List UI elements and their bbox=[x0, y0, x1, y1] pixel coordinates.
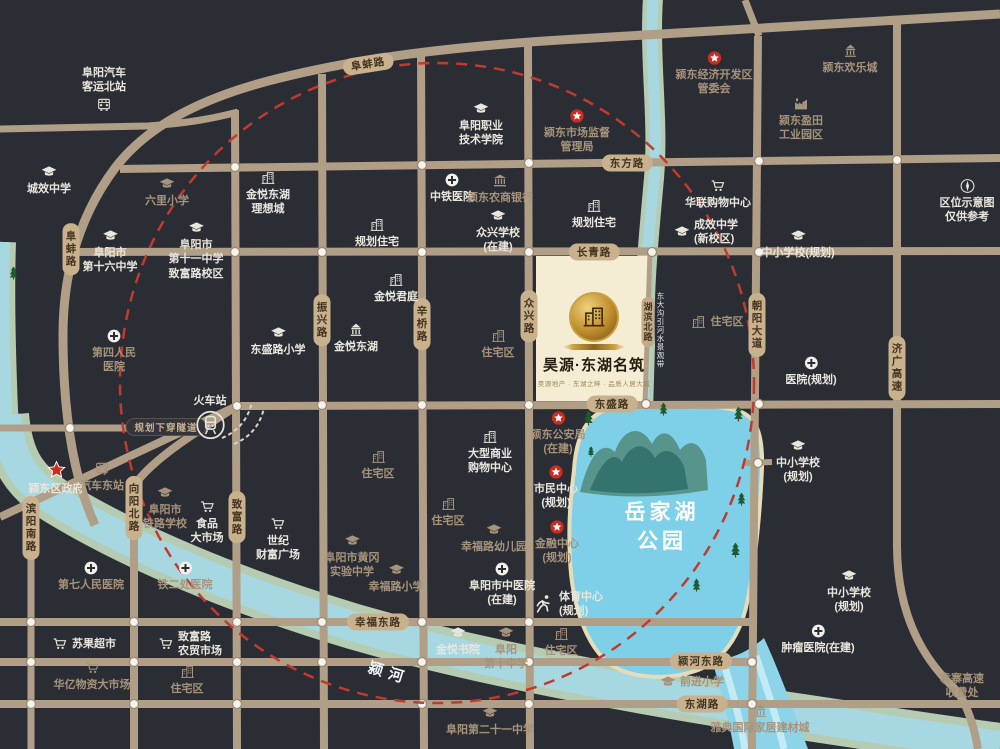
no7-people-hospital: 第七人民医院 bbox=[58, 560, 124, 592]
no4-people-hospital-label: 第四人民医院 bbox=[92, 346, 136, 375]
jinyue-donghu: 金悦东湖 bbox=[334, 322, 378, 354]
shopping-cart-icon bbox=[199, 499, 215, 515]
graduation-cap-icon bbox=[841, 568, 857, 584]
xingfulu-primary-school: 幸福路小学 bbox=[369, 562, 424, 594]
tower-icon bbox=[581, 304, 607, 330]
hualian-shopping-center: 华联购物中心 bbox=[685, 178, 751, 210]
school-planned-east: 中小学校(规划) bbox=[776, 438, 820, 485]
building-icon bbox=[482, 429, 498, 445]
road-label-xingfu-east: 幸福东路 bbox=[347, 614, 409, 631]
finance-center-label: 金融中心(规划) bbox=[535, 537, 579, 566]
building-icon bbox=[388, 272, 404, 288]
zhongxing-school: 众兴学校(在建) bbox=[476, 208, 520, 255]
food-market: 食品大市场 bbox=[191, 499, 224, 546]
graduation-cap-icon bbox=[450, 625, 466, 641]
graduation-cap-icon bbox=[674, 224, 690, 240]
road-label-jiguang-expressway: 济广高速 bbox=[889, 336, 906, 400]
yingdong-district-government-label: 颍东区政府 bbox=[29, 482, 84, 496]
residential-east-label: 住宅区 bbox=[711, 315, 744, 329]
fuyang-no11-middle-school-label: 阜阳市第十一中学致富路校区 bbox=[169, 238, 224, 281]
yingtian-industrial-park-label: 颍东盈田工业园区 bbox=[779, 114, 823, 143]
factory-icon bbox=[793, 96, 809, 112]
residential-center-label: 住宅区 bbox=[432, 514, 465, 528]
hospital-cross-icon bbox=[494, 561, 510, 577]
xingfulu-kindergarten-label: 幸福路幼儿园 bbox=[461, 540, 527, 554]
residential-mid-label: 住宅区 bbox=[482, 346, 515, 360]
graduation-cap-icon bbox=[388, 562, 404, 578]
railway-school-label: 阜阳市铁路学校 bbox=[143, 503, 187, 532]
train-station: 火车站 bbox=[194, 394, 227, 440]
fuyang-vocational-college-label: 阜阳职业技术学院 bbox=[459, 119, 503, 148]
xingfulu-primary-school-label: 幸福路小学 bbox=[369, 580, 424, 594]
jinyue-donghu-label: 金悦东湖 bbox=[334, 340, 378, 354]
yingdong-huanlecheng-label: 颍东欢乐城 bbox=[823, 61, 878, 75]
project-medallion bbox=[569, 292, 619, 342]
residential-southwest: 住宅区 bbox=[362, 449, 395, 481]
no7-people-hospital-label: 第七人民医院 bbox=[58, 578, 124, 592]
residential-center: 住宅区 bbox=[432, 496, 465, 528]
hospital-cross-icon bbox=[177, 560, 193, 576]
road-label-zhifu: 致富路 bbox=[229, 491, 246, 543]
bus-station-east: 汽车东站 bbox=[80, 461, 124, 493]
runner-icon bbox=[533, 593, 555, 615]
graduation-cap-icon bbox=[159, 176, 175, 192]
bus-station-east-label: 汽车东站 bbox=[80, 479, 124, 493]
school-planned-north: 中小学校(规划) bbox=[761, 228, 834, 260]
tieerchu-hospital: 铁二处医院 bbox=[158, 560, 213, 592]
sports-center-label: 体育中心(规划) bbox=[559, 590, 603, 619]
sports-center: 体育中心(规划) bbox=[533, 590, 603, 619]
finance-center: 金融中心(规划) bbox=[535, 519, 579, 566]
qianjin-primary-school-label: 前进小学 bbox=[680, 675, 724, 689]
bus-station-north: 阜阳汽车客运北站 bbox=[82, 66, 126, 113]
graduation-cap-icon bbox=[344, 533, 360, 549]
fuyang-no16-middle-school: 阜阳市第十六中学 bbox=[83, 228, 138, 275]
road-label-xiangyang-north: 向阳北路 bbox=[126, 476, 143, 540]
tcm-hospital-label: 阜阳市中医院(在建) bbox=[469, 579, 535, 608]
road-label-yinghe-east: 颍河东路 bbox=[670, 653, 732, 670]
building-icon bbox=[691, 314, 707, 330]
graduation-cap-icon bbox=[188, 220, 204, 236]
railway-school: 阜阳市铁路学校 bbox=[143, 485, 187, 532]
compass-icon bbox=[959, 178, 975, 194]
yinghe-river-name: 颍河 bbox=[366, 656, 412, 688]
fuyang-no16-middle-school-label: 阜阳市第十六中学 bbox=[83, 246, 138, 275]
location-map-disclaimer: 区位示意图仅供参考 bbox=[940, 178, 995, 225]
fuyang-no11-middle-school: 阜阳市第十一中学致富路校区 bbox=[169, 220, 224, 281]
yingdong-huanlecheng: 颍东欢乐城 bbox=[823, 43, 878, 75]
road-label-dongsheng: 东盛路 bbox=[587, 396, 638, 413]
civic-center: 市民中心(规划) bbox=[534, 464, 578, 511]
planned-residential-east: 规划住宅 bbox=[572, 198, 616, 230]
nongshang-bank: 颍东农商银行 bbox=[467, 173, 533, 205]
star-marker-icon bbox=[569, 108, 585, 124]
star-marker-icon bbox=[550, 410, 566, 426]
hospital-cross-icon bbox=[444, 172, 460, 188]
zhifulu-farmers-market: 致富路农贸市场 bbox=[158, 630, 222, 659]
huayi-materials-market-label: 华亿物资大市场 bbox=[54, 678, 131, 692]
road-label-zhenxing: 振兴路 bbox=[314, 294, 331, 346]
hospital-cross-icon bbox=[106, 328, 122, 344]
shopping-cart-icon bbox=[84, 660, 100, 676]
shopping-cart-icon bbox=[158, 636, 174, 652]
star-marker-icon bbox=[549, 519, 565, 535]
public-security-bureau-label: 颍东公安局(在建) bbox=[531, 428, 586, 457]
school-planned-southeast-label: 中小学校(规划) bbox=[827, 586, 871, 615]
residential-mid: 住宅区 bbox=[482, 328, 515, 360]
dongshenglu-primary-school: 东盛路小学 bbox=[251, 325, 306, 357]
planned-residential-west-label: 规划住宅 bbox=[355, 235, 399, 249]
jinyue-academy: 金悦书院 bbox=[436, 625, 480, 657]
economic-development-zone: 颍东经济开发区管委会 bbox=[676, 50, 753, 97]
jinyue-academy-label: 金悦书院 bbox=[436, 643, 480, 657]
star-marker-icon bbox=[548, 464, 564, 480]
tcm-hospital: 阜阳市中医院(在建) bbox=[469, 561, 535, 608]
graduation-cap-icon bbox=[490, 208, 506, 224]
planned-residential-west: 规划住宅 bbox=[355, 217, 399, 249]
shopping-cart-icon bbox=[52, 636, 68, 652]
large-shopping-center: 大型商业购物中心 bbox=[468, 429, 512, 476]
market-supervision-bureau: 颍东市场监督管理局 bbox=[544, 108, 610, 155]
graduation-cap-icon bbox=[270, 325, 286, 341]
civic-center-label: 市民中心(规划) bbox=[534, 482, 578, 511]
graduation-cap-icon bbox=[41, 164, 57, 180]
large-shopping-center-label: 大型商业购物中心 bbox=[468, 447, 512, 476]
graduation-cap-icon bbox=[486, 522, 502, 538]
building-icon bbox=[490, 328, 506, 344]
building-icon bbox=[586, 198, 602, 214]
residential-east: 住宅区 bbox=[691, 314, 744, 330]
food-market-label: 食品大市场 bbox=[191, 517, 224, 546]
chengxiao-new-campus-label: 成效中学(新校区) bbox=[694, 218, 738, 247]
building-icon bbox=[440, 496, 456, 512]
no4-people-hospital: 第四人民医院 bbox=[92, 328, 136, 375]
road-label-changqing: 长青路 bbox=[569, 244, 620, 261]
bus-icon bbox=[96, 97, 112, 113]
road-label-fubeng-north: 阜蚌路 bbox=[342, 52, 395, 77]
chengxiao-middle-school: 城效中学 bbox=[27, 164, 71, 196]
train-station-label: 火车站 bbox=[194, 394, 227, 408]
government-star-icon bbox=[46, 460, 66, 480]
location-map: 昊源·东湖名筑 昊源地产 · 东湖之畔 · 品质人居大城 阜阳汽车客运北站城效中… bbox=[0, 0, 1000, 749]
zhongxing-school-label: 众兴学校(在建) bbox=[476, 226, 520, 255]
yadian-home-furnishing-city-label: 雅典国际家居建材城 bbox=[711, 721, 810, 735]
fuyang-no10-middle-school-label: 阜阳第十中学 bbox=[484, 643, 528, 672]
building-icon bbox=[553, 626, 569, 642]
economic-development-zone-label: 颍东经济开发区管委会 bbox=[676, 68, 753, 97]
map-overlays: 昊源·东湖名筑 昊源地产 · 东湖之畔 · 品质人居大城 阜阳汽车客运北站城效中… bbox=[0, 0, 1000, 749]
school-planned-southeast: 中小学校(规划) bbox=[827, 568, 871, 615]
star-marker-icon bbox=[706, 50, 722, 66]
school-planned-north-label: 中小学校(规划) bbox=[761, 246, 834, 260]
tumor-hospital: 肿瘤医院(在建) bbox=[781, 623, 854, 655]
residential-southeast: 住宅区 bbox=[545, 626, 578, 658]
project-name: 昊源·东湖名筑 bbox=[543, 354, 645, 375]
hospital-planned-label: 医院(规划) bbox=[785, 373, 836, 387]
graduation-cap-icon bbox=[102, 228, 118, 244]
suguo-supermarket: 苏果超市 bbox=[52, 636, 116, 652]
residential-south: 住宅区 bbox=[171, 664, 204, 696]
zhifulu-farmers-market-label: 致富路农贸市场 bbox=[178, 630, 222, 659]
yuanzhai-toll-station-label: 袁寨高速收费处 bbox=[940, 672, 984, 701]
shopping-cart-icon bbox=[710, 178, 726, 194]
road-label-binyang-south: 滨阳南路 bbox=[23, 496, 40, 560]
yuejiahu-park-name: 岳家湖公园 bbox=[625, 498, 700, 557]
chengxiao-new-campus: 成效中学(新校区) bbox=[674, 218, 738, 247]
school-planned-east-label: 中小学校(规划) bbox=[776, 456, 820, 485]
jinyue-junting-label: 金悦君庭 bbox=[374, 290, 418, 304]
jinyue-donghu-lixiangcheng-label: 金悦东湖理想城 bbox=[246, 188, 290, 217]
market-supervision-bureau-label: 颍东市场监督管理局 bbox=[544, 126, 610, 155]
huayi-materials-market: 华亿物资大市场 bbox=[54, 660, 131, 692]
yuanzhai-toll-station: 袁寨高速收费处 bbox=[940, 672, 984, 701]
graduation-cap-icon bbox=[482, 705, 498, 721]
tieerchu-hospital-label: 铁二处医院 bbox=[158, 578, 213, 592]
pavilion-icon bbox=[348, 322, 364, 338]
laurel-ribbon bbox=[562, 344, 626, 350]
yingdong-district-government: 颍东区政府 bbox=[29, 460, 84, 496]
pavilion-icon bbox=[842, 43, 858, 59]
yadian-home-furnishing-city: 雅典国际家居建材城 bbox=[711, 703, 810, 735]
hospital-cross-icon bbox=[810, 623, 826, 639]
tumor-hospital-label: 肿瘤医院(在建) bbox=[781, 641, 854, 655]
graduation-cap-icon bbox=[498, 625, 514, 641]
building-icon bbox=[179, 664, 195, 680]
road-label-fubeng-west: 阜蚌路 bbox=[63, 223, 80, 275]
liuli-primary-school-label: 六里小学 bbox=[145, 194, 189, 208]
hospital-cross-icon bbox=[83, 560, 99, 576]
pavilion-icon bbox=[752, 703, 768, 719]
bus-icon bbox=[94, 461, 110, 477]
yingtian-industrial-park: 颍东盈田工业园区 bbox=[779, 96, 823, 143]
donggou-waterway-name: 东大沟引河水景观带 bbox=[655, 292, 666, 369]
residential-southeast-label: 住宅区 bbox=[545, 644, 578, 658]
jinyue-donghu-lixiangcheng: 金悦东湖理想城 bbox=[246, 170, 290, 217]
century-wealth-plaza: 世纪财富广场 bbox=[256, 516, 300, 563]
hualian-shopping-center-label: 华联购物中心 bbox=[685, 196, 751, 210]
planned-residential-east-label: 规划住宅 bbox=[572, 216, 616, 230]
nongshang-bank-label: 颍东农商银行 bbox=[467, 191, 533, 205]
fuyang-no10-middle-school: 阜阳第十中学 bbox=[484, 625, 528, 672]
road-label-chaoyang-avenue: 朝阳大道 bbox=[749, 293, 766, 357]
project-logo: 昊源·东湖名筑 昊源地产 · 东湖之畔 · 品质人居大城 bbox=[534, 292, 654, 388]
graduation-cap-icon bbox=[790, 228, 806, 244]
graduation-cap-icon bbox=[660, 674, 676, 690]
liuli-primary-school: 六里小学 bbox=[145, 176, 189, 208]
bank-icon bbox=[492, 173, 508, 189]
century-wealth-plaza-label: 世纪财富广场 bbox=[256, 534, 300, 563]
residential-south-label: 住宅区 bbox=[171, 682, 204, 696]
public-security-bureau: 颍东公安局(在建) bbox=[531, 410, 586, 457]
building-icon bbox=[369, 217, 385, 233]
bus-station-north-label: 阜阳汽车客运北站 bbox=[82, 66, 126, 95]
hospital-planned: 医院(规划) bbox=[785, 355, 836, 387]
project-tagline: 昊源地产 · 东湖之畔 · 品质人居大城 bbox=[538, 378, 651, 388]
train-station-icon bbox=[195, 410, 225, 440]
graduation-cap-icon bbox=[157, 485, 173, 501]
graduation-cap-icon bbox=[790, 438, 806, 454]
building-icon bbox=[370, 449, 386, 465]
location-map-disclaimer-label: 区位示意图仅供参考 bbox=[940, 196, 995, 225]
dongshenglu-primary-school-label: 东盛路小学 bbox=[251, 343, 306, 357]
suguo-supermarket-label: 苏果超市 bbox=[72, 637, 116, 651]
fuyang-vocational-college: 阜阳职业技术学院 bbox=[459, 101, 503, 148]
road-label-xinqiao: 辛桥路 bbox=[414, 298, 431, 350]
road-label-dongfang: 东方路 bbox=[602, 155, 653, 172]
fuyang-no21-middle-school-label: 阜阳第二十一中学 bbox=[446, 723, 534, 737]
xingfulu-kindergarten: 幸福路幼儿园 bbox=[461, 522, 527, 554]
hospital-cross-icon bbox=[803, 355, 819, 371]
residential-southwest-label: 住宅区 bbox=[362, 467, 395, 481]
fuyang-no21-middle-school: 阜阳第二十一中学 bbox=[446, 705, 534, 737]
jinyue-junting: 金悦君庭 bbox=[374, 272, 418, 304]
shopping-cart-icon bbox=[270, 516, 286, 532]
qianjin-primary-school: 前进小学 bbox=[660, 674, 724, 690]
building-icon bbox=[260, 170, 276, 186]
graduation-cap-icon bbox=[473, 101, 489, 117]
chengxiao-middle-school-label: 城效中学 bbox=[27, 182, 71, 196]
